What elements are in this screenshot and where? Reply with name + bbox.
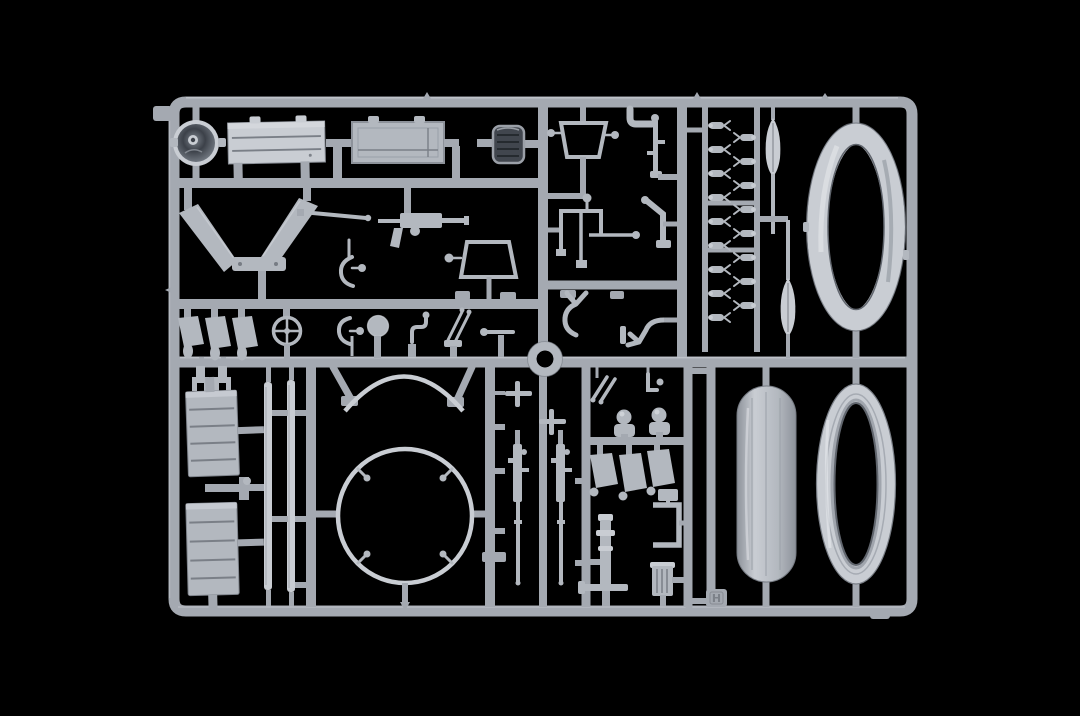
flat-oval-ring-part <box>817 384 896 584</box>
pontoon-float-part <box>737 386 796 582</box>
gate-tab-bottom <box>870 611 890 619</box>
gate-tab-left <box>153 106 172 121</box>
sprue-letter: H <box>712 592 721 605</box>
photo-stage: H <box>0 0 1080 716</box>
strip-part-1 <box>264 366 272 606</box>
sprue-letter-tag: H <box>706 589 727 607</box>
sprue-center-ring <box>528 342 563 377</box>
sprue-photo: H <box>0 0 1080 716</box>
